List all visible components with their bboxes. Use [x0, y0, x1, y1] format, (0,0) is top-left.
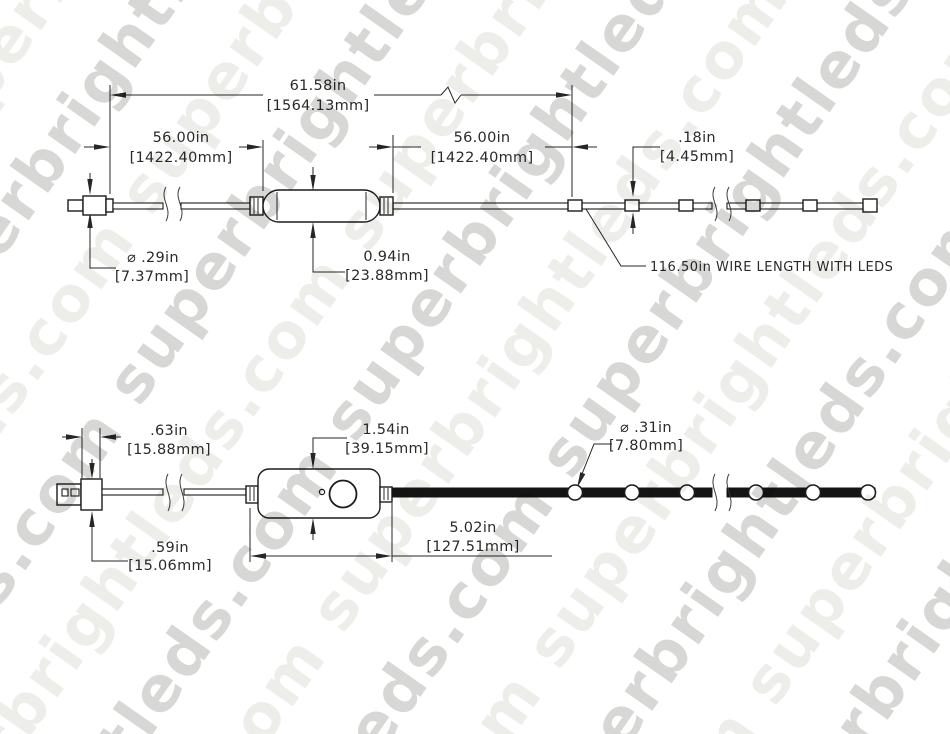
dim-usb-height-mm: [15.06mm]	[128, 558, 212, 574]
top-inline-module	[250, 190, 393, 222]
dim-led-width-in: .18in	[678, 130, 716, 146]
indicator-dot	[319, 489, 324, 494]
usb-pin	[71, 489, 79, 496]
dim-usb-height-in: .59in	[151, 540, 189, 556]
bottom-control-module	[246, 469, 392, 518]
bottom-view: .63in [15.88mm] .59in [15.06mm] 1.54in […	[57, 420, 876, 574]
drawing-canvas: 61.58in [1564.13mm] 56.00in [1422.40mm] …	[0, 0, 950, 734]
cable-break-symbol	[166, 474, 184, 511]
dim-connector-dia-mm: [7.37mm]	[115, 269, 189, 285]
top-view: 61.58in [1564.13mm] 56.00in [1422.40mm] …	[68, 78, 893, 285]
dim-overall-in: 61.58in	[290, 78, 347, 94]
dim-module-height-mm: [39.15mm]	[345, 441, 429, 457]
top-barrel-connector	[68, 196, 113, 215]
dim-wire-left-in: 56.00in	[153, 130, 210, 146]
dim-led-dia-mm: [7.80mm]	[609, 438, 683, 454]
dim-module-height-in: 1.54in	[362, 422, 409, 438]
usb-pin	[62, 489, 68, 496]
bottom-led-wire	[392, 474, 876, 511]
power-button	[330, 481, 357, 508]
dim-led-dia-in: ⌀ .31in	[620, 420, 672, 436]
bottom-lead-wire	[102, 474, 246, 511]
top-wire-end-cap	[863, 199, 877, 212]
dim-wire-right-mm: [1422.40mm]	[431, 150, 534, 166]
dim-break-symbol	[441, 87, 461, 103]
top-dim-wire-left: 56.00in [1422.40mm]	[84, 130, 263, 166]
top-dim-connector-diameter: ⌀ .29in [7.37mm]	[87, 173, 189, 285]
dim-usb-length-mm: [15.88mm]	[127, 442, 211, 458]
dim-module-dia-in: 0.94in	[363, 249, 410, 265]
technical-drawing: 61.58in [1564.13mm] 56.00in [1422.40mm] …	[0, 0, 950, 734]
top-dim-overall: 61.58in [1564.13mm]	[110, 78, 572, 114]
bottom-dim-led-diameter: ⌀ .31in [7.80mm]	[577, 420, 683, 488]
bottom-dim-usb-length: .63in [15.88mm]	[62, 423, 211, 478]
dim-wire-right-in: 56.00in	[454, 130, 511, 146]
dim-module-length-in: 5.02in	[449, 520, 496, 536]
wire-length-note: 116.50in WIRE LENGTH WITH LEDS	[650, 260, 893, 275]
bottom-usb-connector	[57, 479, 102, 510]
bottom-dim-usb-height: .59in [15.06mm]	[89, 459, 212, 574]
dim-connector-dia-in: ⌀ .29in	[127, 250, 179, 266]
dim-module-length-mm: [127.51mm]	[426, 539, 519, 555]
dim-module-dia-mm: [23.88mm]	[345, 268, 429, 284]
dim-wire-left-mm: [1422.40mm]	[130, 150, 233, 166]
dim-usb-length-in: .63in	[150, 423, 188, 439]
top-dim-led-width: .18in [4.45mm]	[630, 130, 734, 234]
top-dim-wire-right: 56.00in [1422.40mm]	[369, 130, 597, 166]
top-dim-module-diameter: 0.94in [23.88mm]	[310, 167, 429, 284]
dim-led-width-mm: [4.45mm]	[660, 149, 734, 165]
dim-overall-mm: [1564.13mm]	[267, 98, 370, 114]
